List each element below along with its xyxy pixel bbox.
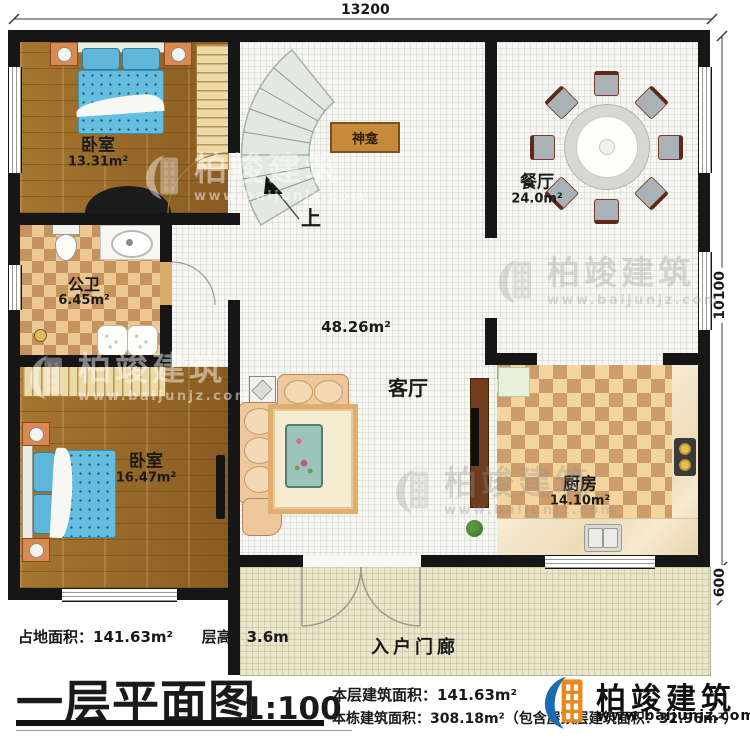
wall-kitchen-top-left [497,353,537,365]
entrance-door-threshold [302,555,422,567]
kitchen-sink-basin-1 [588,528,603,548]
bedroom2-nightstand-bottom [22,538,50,562]
wall-bedroom1-right [228,42,240,153]
bathroom-label: 公卫 6.45m² [58,276,109,308]
wall-hall-kitchen-stub [485,318,497,365]
coffee-table [285,424,323,488]
kitchen-sink-basin-2 [603,528,618,548]
bedroom1-label: 卧室 13.31m² [68,137,128,170]
floor-height: 层高：3.6m [202,628,289,646]
wall-bedroom1-bottom [20,213,240,225]
living-label: 客厅 [388,377,428,399]
floor-plan-page: 神龛 [0,0,750,740]
bedroom2-window [62,588,177,602]
bedroom2-headboard [22,444,33,542]
wall-bathroom-bottom [20,355,172,367]
shower-tray-2 [127,325,158,356]
bedroom1-nightstand-right [164,42,192,66]
sofa-top-cushion-2 [314,380,343,404]
bedroom1-wardrobe [196,44,229,170]
potted-plant [466,520,483,537]
wall-dining-left [485,42,497,238]
floor-drain [34,329,47,342]
title-underline-thin [16,730,352,731]
dining-chair [658,135,683,160]
living-area-label: 48.26m² [321,319,391,336]
dining-chair [594,199,619,224]
brand-website: www.baijunjz.com [597,708,750,724]
porch-floor [240,567,711,676]
plan-scale: 1:100 [243,691,342,727]
wall-kitchen-top-right [663,353,710,365]
living-tv [471,408,479,466]
cutting-board [498,367,530,397]
shrine-table: 神龛 [330,122,400,153]
wall-top [8,30,710,42]
porch-label: 入户门廊 [371,638,459,658]
floor-area: 本层建筑面积：141.63m² [332,684,517,705]
bedroom2-tv [216,455,225,519]
shrine-label: 神龛 [352,128,378,147]
bedroom1-window [8,67,22,173]
dining-chair [530,135,555,160]
dining-window [698,67,712,173]
bathroom-window [8,265,22,310]
bedroom1-nightstand-left [50,42,78,66]
shower-tray-1 [97,325,128,356]
bedroom1-pillow-right [122,48,160,70]
wall-bedroom2-right [228,300,240,675]
dim-right: 10100 [712,268,728,323]
bedroom1-pillow-left [82,48,120,70]
dim-top: 13200 [338,2,393,18]
bedroom2-nightstand-top [22,422,50,446]
dining-table-center [599,139,615,155]
site-area-line: 占地面积：141.63m² 层高：3.6m [18,626,289,647]
dining-chair [594,71,619,96]
bedroom2-label: 卧室 16.47m² [116,453,176,486]
kitchen-window [545,555,655,569]
bathroom-sink-drain [126,239,133,246]
brand-logo-icon [540,672,592,730]
stove-burner-1 [679,443,691,455]
living-window [698,252,712,330]
sofa-top-cushion-1 [284,380,313,404]
stairs-up-label: 上 [301,207,321,229]
bathroom-door-opening [160,262,172,305]
dining-label: 餐厅 24.0m² [511,174,562,207]
kitchen-label: 厨房 14.10m² [550,476,610,509]
dim-right-lower: 600 [712,565,728,600]
stove-burner-2 [679,459,691,471]
site-area: 占地面积：141.63m² [18,628,173,646]
